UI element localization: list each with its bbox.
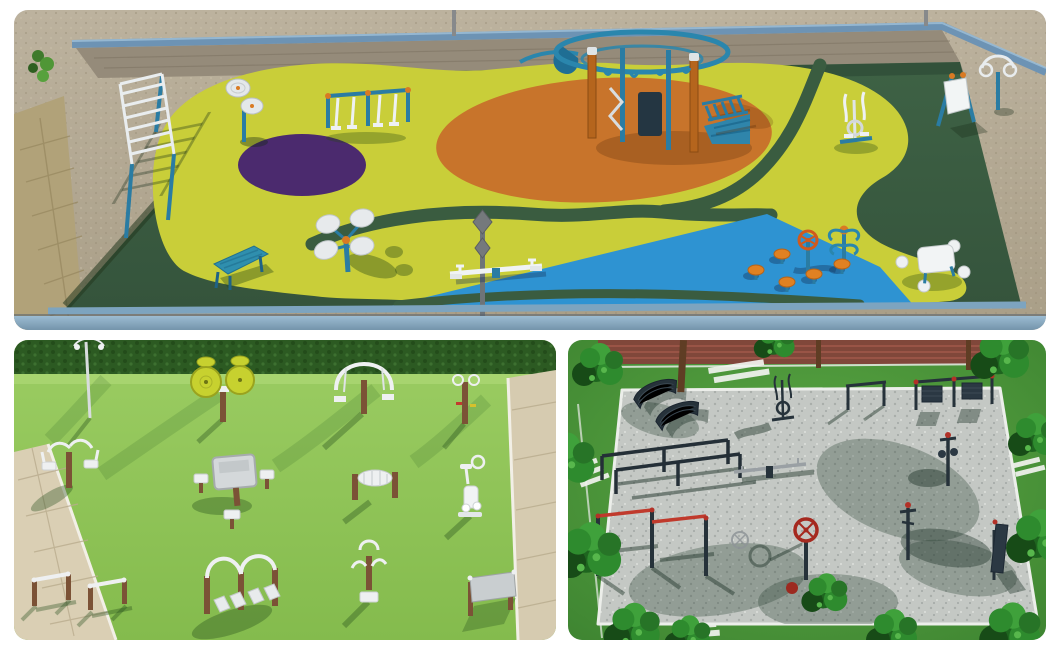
curb-rail (14, 305, 1046, 330)
street-workout-scene (568, 340, 1046, 640)
hedge-row (14, 340, 556, 374)
light-pole (452, 10, 456, 36)
render-collage (0, 0, 1060, 650)
spinner-ball (786, 582, 798, 594)
brick-path (598, 340, 998, 364)
playground-scene (14, 10, 1046, 330)
panel-playground-render (14, 10, 1046, 330)
light-pole (924, 10, 928, 26)
lawn-gym-scene (14, 340, 556, 640)
panel-street-workout-render (568, 340, 1046, 640)
panel-lawn-gym-render (14, 340, 556, 640)
